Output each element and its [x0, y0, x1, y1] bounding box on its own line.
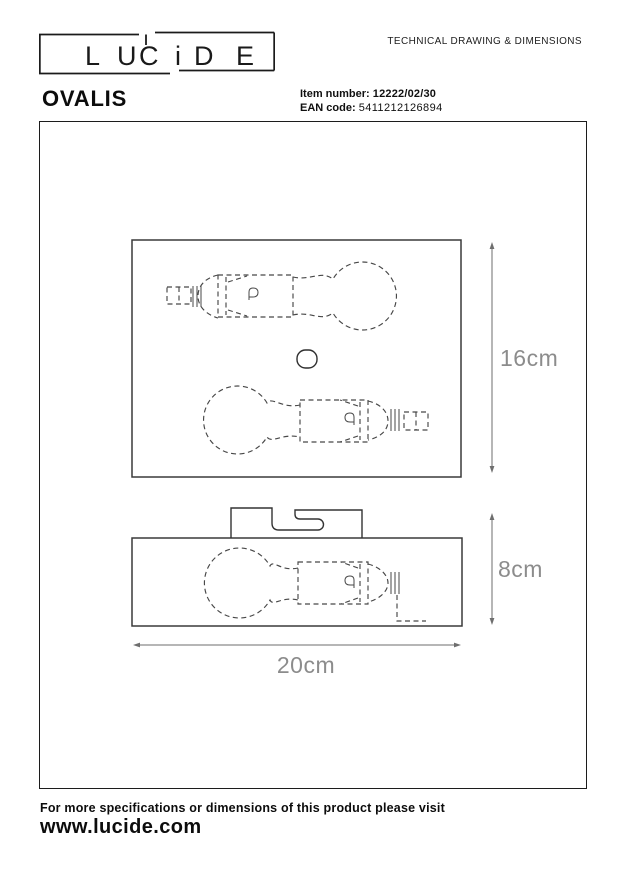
- footer-note: For more specifications or dimensions of…: [40, 801, 445, 815]
- socket-clip: [345, 576, 354, 588]
- front-view-outline: [132, 538, 462, 626]
- socket-clip: [249, 288, 258, 300]
- dim-arrow-16cm: [490, 242, 495, 473]
- mounting-bracket: [231, 508, 362, 538]
- socket-threads-front: [345, 572, 399, 594]
- website-link[interactable]: www.lucide.com: [40, 816, 202, 839]
- dim-label-20cm: 20cm: [270, 652, 342, 679]
- dimension-arrows: [133, 242, 494, 647]
- bulb-front: [204, 548, 426, 621]
- technical-sheet-page: L U C i D E TECHNICAL DRAWING & DIMENSIO…: [0, 0, 620, 877]
- dim-arrow-8cm: [490, 513, 495, 625]
- front-view-drawing: [132, 508, 462, 626]
- technical-drawing: [0, 0, 620, 877]
- dim-label-8cm: 8cm: [498, 556, 543, 583]
- dim-label-16cm: 16cm: [500, 345, 558, 372]
- socket-clip: [345, 413, 354, 425]
- top-view-drawing: [132, 240, 461, 477]
- cable-line: [397, 595, 426, 621]
- mount-oval: [297, 350, 317, 368]
- socket-threads-bottom: [345, 409, 399, 431]
- dim-arrow-20cm: [133, 643, 461, 648]
- bulb-top-left: [204, 386, 428, 454]
